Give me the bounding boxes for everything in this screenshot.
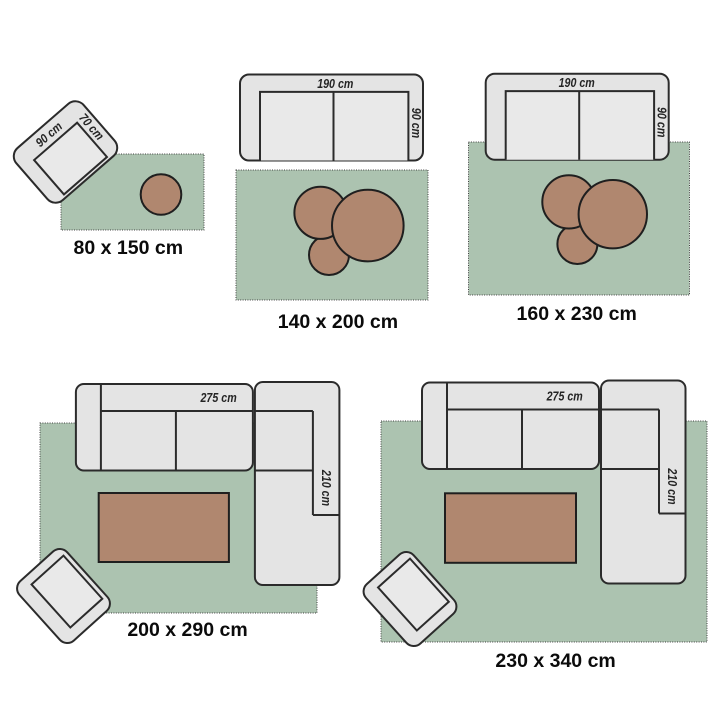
svg-text:200 x 290 cm: 200 x 290 cm [127,619,247,641]
svg-text:190 cm: 190 cm [317,77,353,91]
svg-text:230 x 340 cm: 230 x 340 cm [495,650,615,672]
svg-text:275 cm: 275 cm [200,391,237,405]
svg-text:90 cm: 90 cm [409,108,423,139]
svg-text:80 x 150 cm: 80 x 150 cm [74,237,184,259]
svg-text:160 x 230 cm: 160 x 230 cm [517,303,637,325]
svg-text:190 cm: 190 cm [559,76,595,90]
svg-text:140 x 200 cm: 140 x 200 cm [278,311,398,333]
svg-text:275 cm: 275 cm [546,389,583,403]
svg-text:210 cm: 210 cm [319,469,333,506]
svg-text:210 cm: 210 cm [665,468,679,505]
svg-text:90 cm: 90 cm [655,107,669,138]
